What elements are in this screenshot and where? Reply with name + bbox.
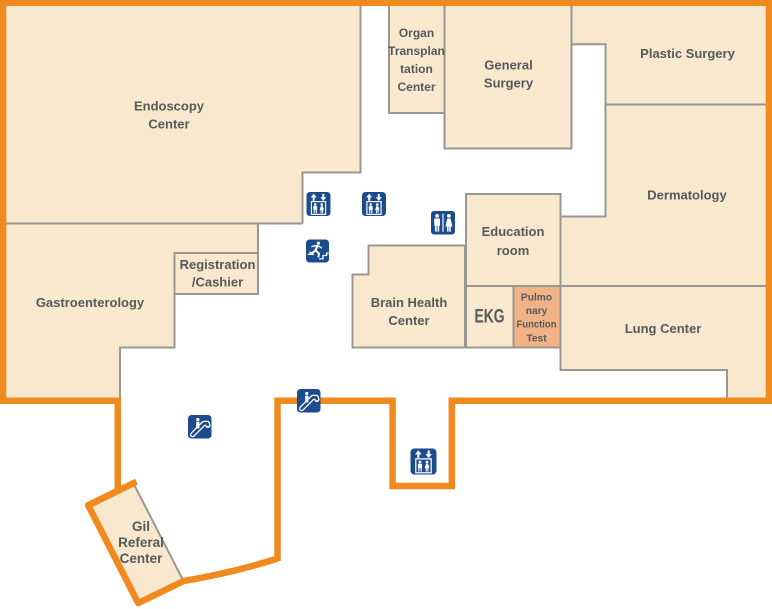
svg-text:nary: nary xyxy=(526,306,548,317)
svg-text:Plastic Surgery: Plastic Surgery xyxy=(640,46,735,61)
svg-text:room: room xyxy=(497,243,530,258)
svg-text:General: General xyxy=(484,58,532,73)
svg-text:Center: Center xyxy=(397,80,435,94)
svg-text:Center: Center xyxy=(120,551,164,566)
svg-text:Center: Center xyxy=(388,313,429,328)
svg-text:Organ: Organ xyxy=(399,26,434,40)
svg-text:Registration: Registration xyxy=(180,257,256,272)
svg-text:Center: Center xyxy=(148,117,189,132)
svg-text:Lung Center: Lung Center xyxy=(625,321,702,336)
svg-text:Referal: Referal xyxy=(118,535,164,550)
svg-text:/Cashier: /Cashier xyxy=(192,275,243,290)
svg-text:Function: Function xyxy=(517,320,557,331)
svg-text:Education: Education xyxy=(482,224,545,239)
svg-text:Test: Test xyxy=(526,333,547,344)
svg-text:tation: tation xyxy=(400,62,433,76)
svg-text:Brain Health: Brain Health xyxy=(371,295,448,310)
svg-text:Dermatology: Dermatology xyxy=(647,188,727,203)
svg-text:Gil: Gil xyxy=(132,519,150,534)
svg-text:Gastroenterology: Gastroenterology xyxy=(36,295,145,310)
svg-text:Transplan: Transplan xyxy=(388,44,445,58)
svg-text:EKG: EKG xyxy=(475,307,505,328)
svg-text:Endoscopy: Endoscopy xyxy=(134,99,205,114)
svg-text:Surgery: Surgery xyxy=(484,76,534,91)
svg-text:Pulmo: Pulmo xyxy=(521,293,552,304)
